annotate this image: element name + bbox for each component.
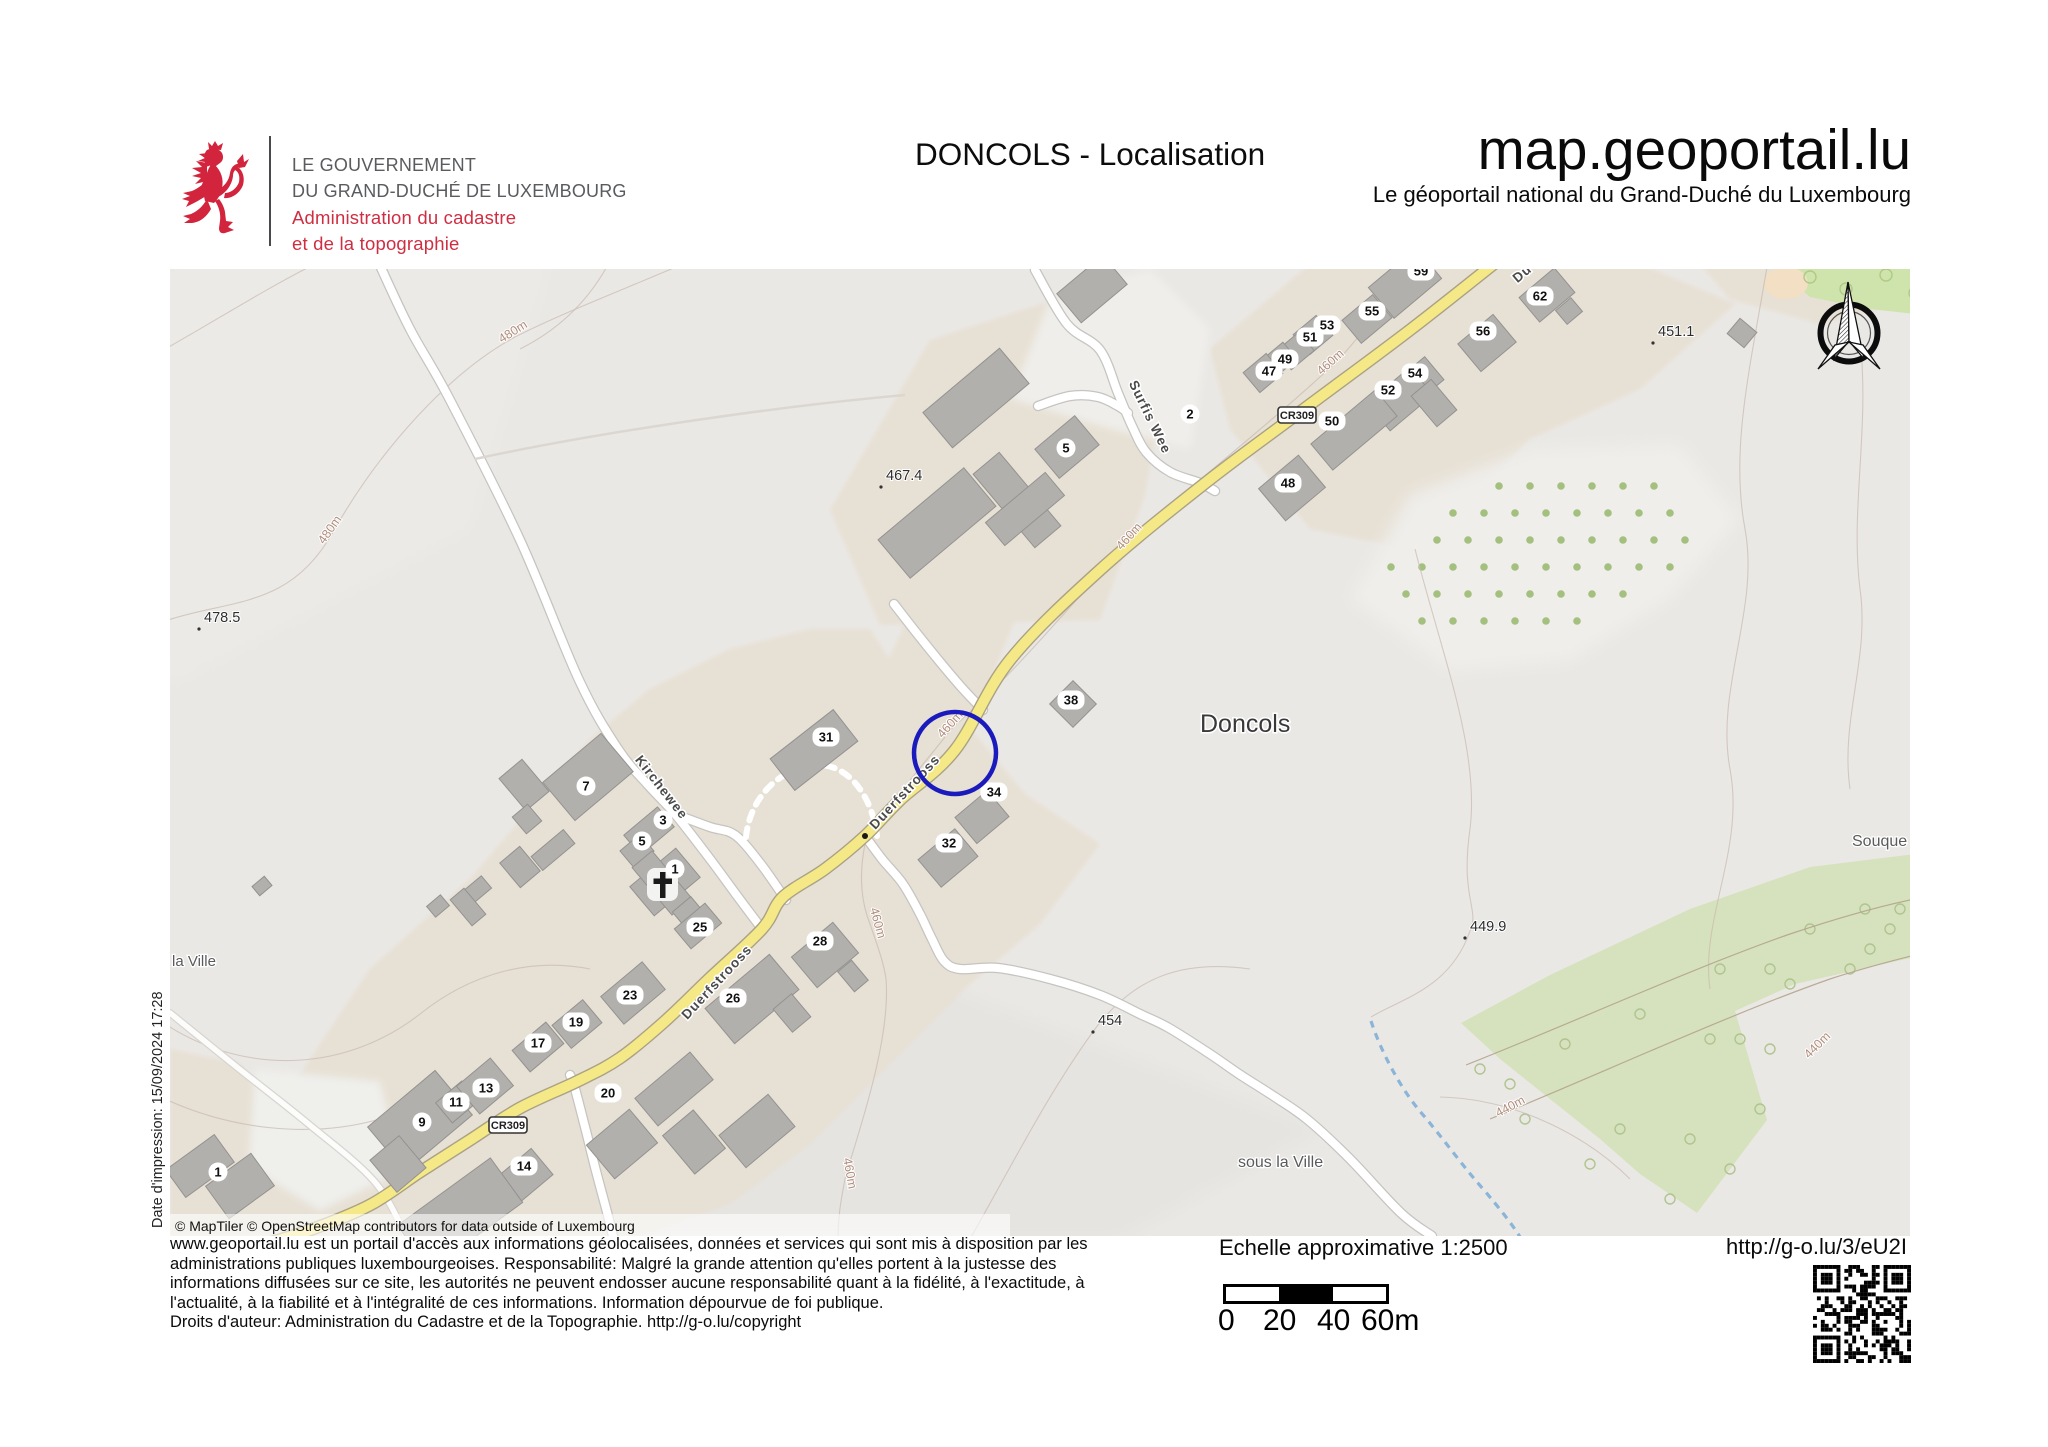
svg-text:25: 25 — [693, 920, 707, 935]
svg-text:31: 31 — [819, 730, 833, 745]
svg-text:26: 26 — [726, 991, 740, 1006]
svg-text:454: 454 — [1098, 1013, 1122, 1029]
svg-text:5: 5 — [638, 834, 645, 849]
svg-text:32: 32 — [942, 836, 956, 851]
svg-text:13: 13 — [479, 1081, 493, 1096]
svg-text:CR309: CR309 — [1280, 410, 1314, 422]
svg-text:11: 11 — [449, 1095, 463, 1110]
svg-text:2: 2 — [1186, 407, 1193, 422]
svg-text:1: 1 — [671, 862, 678, 877]
svg-text:467.4: 467.4 — [886, 468, 922, 484]
svg-text:51: 51 — [1303, 330, 1317, 345]
svg-text:14: 14 — [517, 1159, 532, 1174]
svg-text:23: 23 — [623, 988, 637, 1003]
svg-text:56: 56 — [1476, 324, 1490, 339]
svg-text:5: 5 — [1062, 441, 1069, 456]
svg-text:Doncols: Doncols — [1200, 710, 1290, 738]
svg-text:7: 7 — [582, 779, 589, 794]
svg-text:59: 59 — [1414, 269, 1428, 279]
svg-text:CR309: CR309 — [491, 1120, 525, 1132]
svg-text:53: 53 — [1320, 318, 1334, 333]
svg-text:55: 55 — [1365, 304, 1379, 319]
svg-text:sous la Ville: sous la Ville — [1238, 1154, 1323, 1171]
svg-text:la Ville: la Ville — [172, 953, 216, 970]
svg-text:1: 1 — [214, 1165, 221, 1180]
svg-text:451.1: 451.1 — [1658, 324, 1694, 340]
svg-text:34: 34 — [987, 785, 1002, 800]
svg-text:17: 17 — [531, 1036, 545, 1051]
svg-text:28: 28 — [813, 934, 827, 949]
svg-text:48: 48 — [1281, 476, 1295, 491]
svg-text:54: 54 — [1408, 366, 1423, 381]
svg-text:© MapTiler © OpenStreetMap con: © MapTiler © OpenStreetMap contributors … — [175, 1218, 635, 1234]
svg-text:9: 9 — [418, 1115, 425, 1130]
svg-text:3: 3 — [659, 813, 666, 828]
svg-text:38: 38 — [1064, 693, 1078, 708]
svg-text:52: 52 — [1381, 383, 1395, 398]
svg-text:50: 50 — [1325, 414, 1339, 429]
svg-text:20: 20 — [601, 1086, 615, 1101]
svg-text:Souque: Souque — [1852, 833, 1907, 850]
svg-text:19: 19 — [569, 1015, 583, 1030]
svg-text:478.5: 478.5 — [204, 610, 240, 626]
svg-text:47: 47 — [1262, 364, 1276, 379]
svg-text:449.9: 449.9 — [1470, 919, 1506, 935]
svg-text:62: 62 — [1533, 289, 1547, 304]
